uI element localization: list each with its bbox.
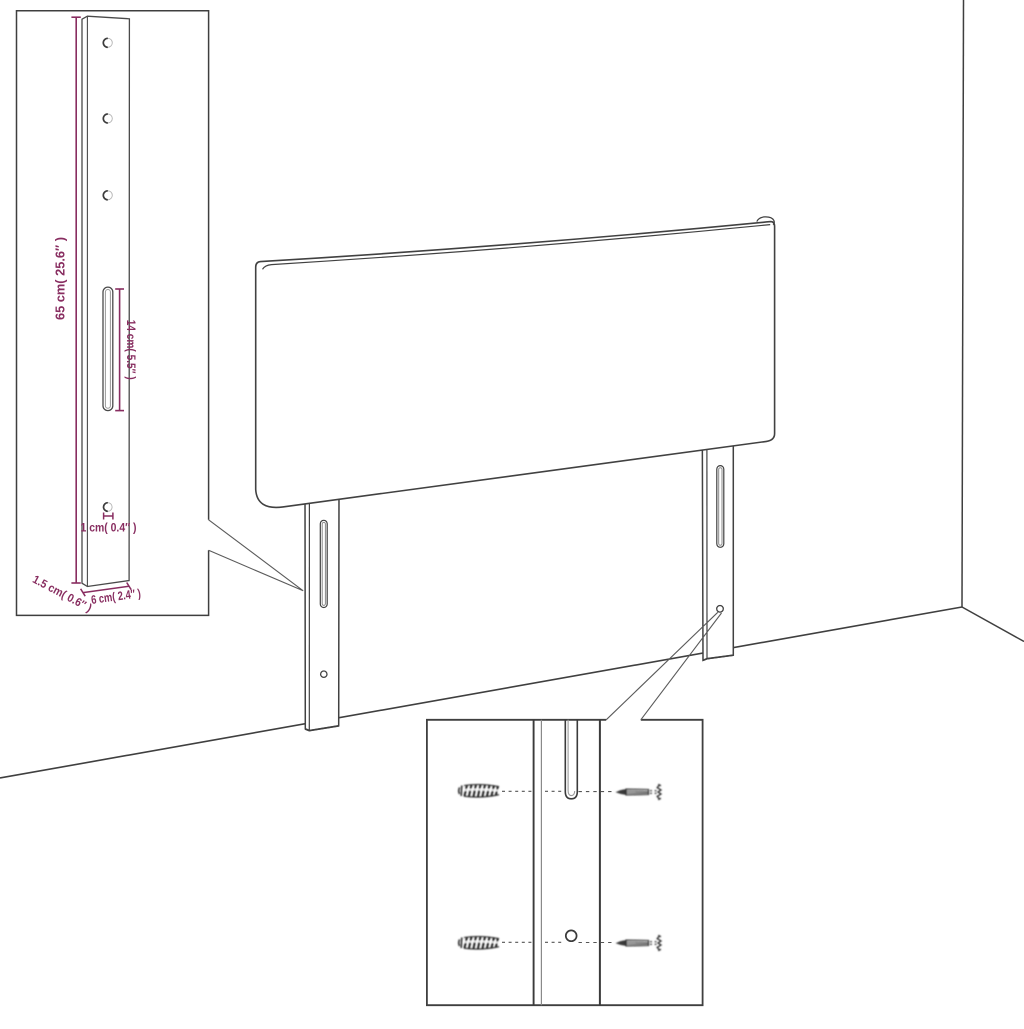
- svg-text:1 cm( 0.4″ ): 1 cm( 0.4″ ): [81, 521, 137, 535]
- svg-text:65 cm( 25.6″ ): 65 cm( 25.6″ ): [54, 237, 68, 320]
- svg-text:14 cm( 5.5″ ): 14 cm( 5.5″ ): [124, 320, 138, 380]
